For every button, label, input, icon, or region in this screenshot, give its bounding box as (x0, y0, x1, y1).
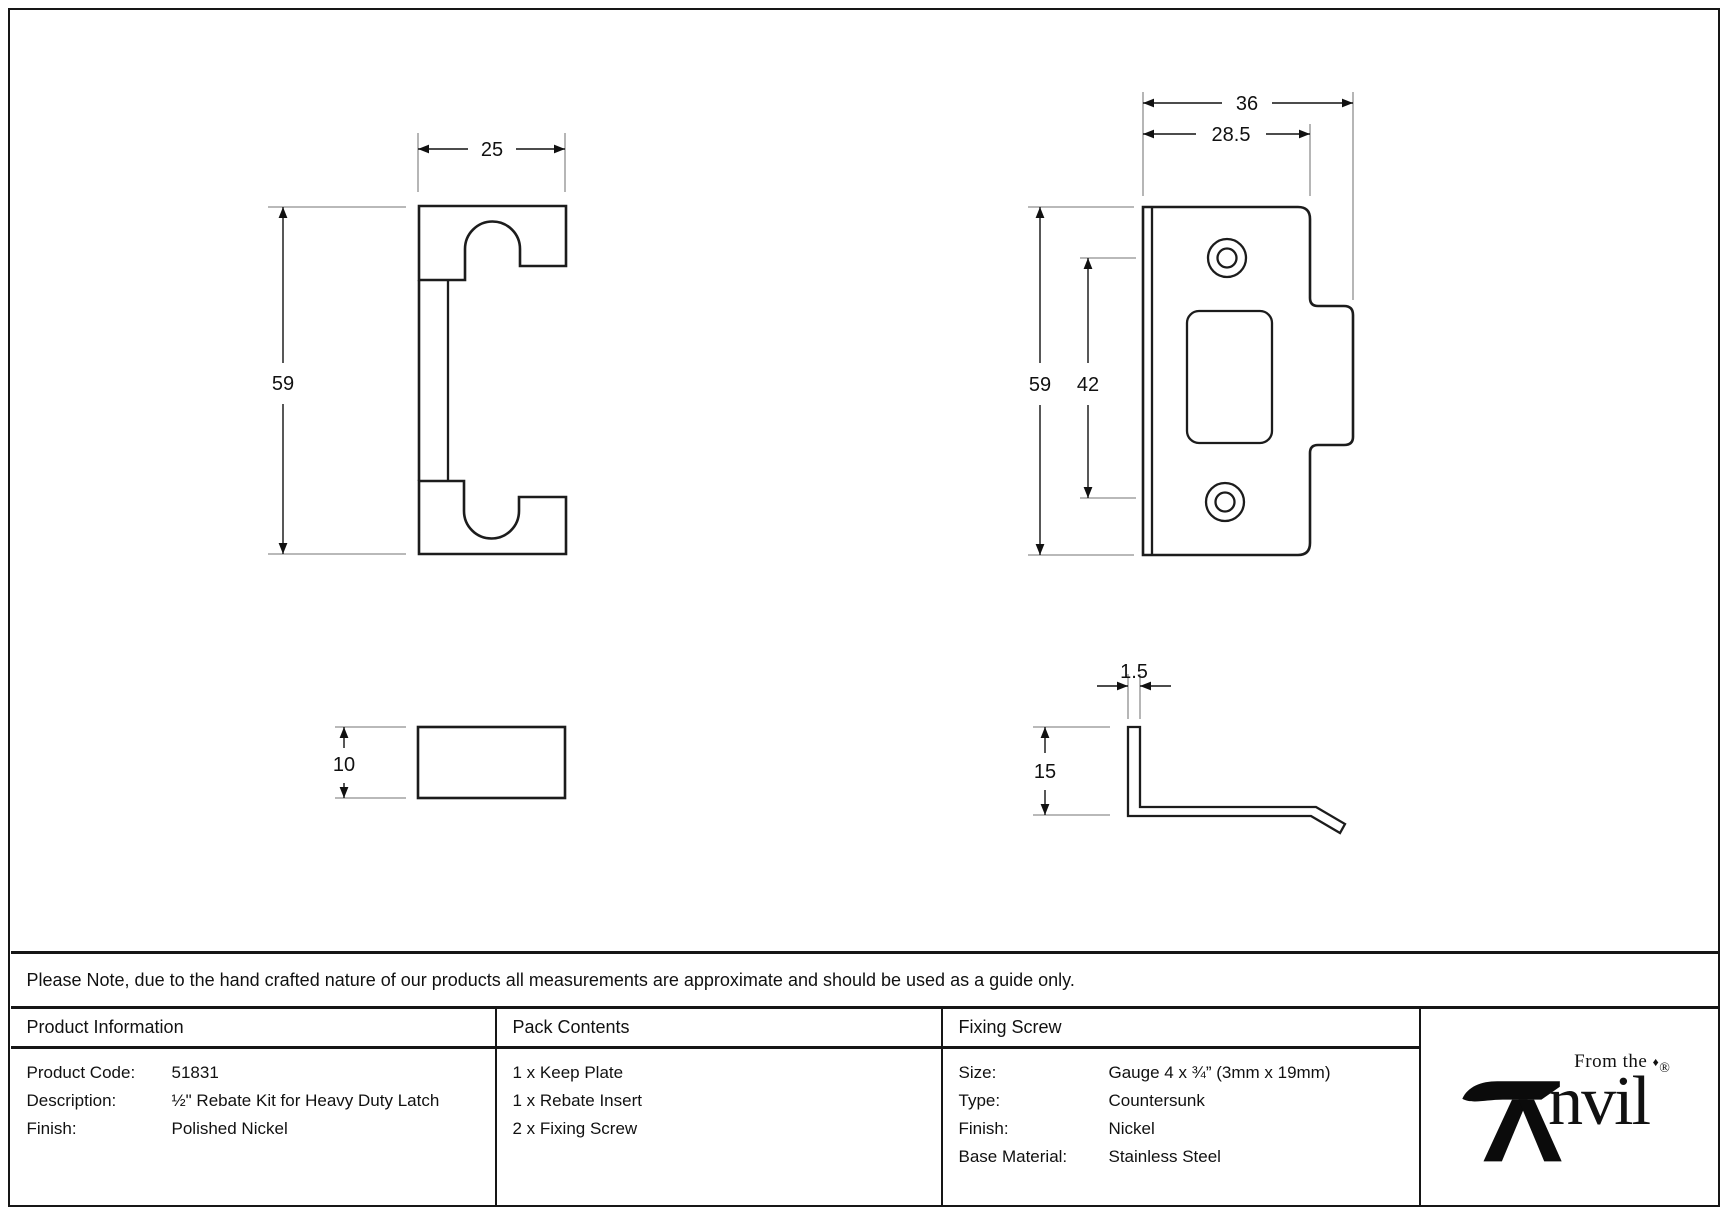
table-row: Finish: Nickel (959, 1115, 1419, 1143)
column-pack-contents: Pack Contents 1 x Keep Plate 1 x Rebate … (495, 1009, 941, 1207)
dim-keep-plate-width: 28.5 (1212, 124, 1251, 146)
row-label: Finish: (27, 1115, 172, 1143)
measurement-note: Please Note, due to the hand crafted nat… (11, 951, 1720, 1006)
column-fixing-screw: Fixing Screw Size: Gauge 4 x ¾” (3mm x 1… (941, 1009, 1419, 1207)
screw-hole-top-outer (1208, 239, 1246, 277)
note-text: Please Note, due to the hand crafted nat… (27, 970, 1075, 991)
dim-keep-thickness: 1.5 (1120, 661, 1148, 683)
product-information-header: Product Information (11, 1009, 495, 1049)
dim-keep-lip-height: 15 (1034, 761, 1056, 783)
fixing-screw-body: Size: Gauge 4 x ¾” (3mm x 19mm) Type: Co… (943, 1049, 1419, 1171)
brand-name: nvil (1548, 1073, 1659, 1130)
dim-insert-height: 59 (272, 373, 294, 395)
description-value: ½" Rebate Kit for Heavy Duty Latch (172, 1087, 440, 1115)
insert-side-outline (418, 727, 565, 798)
list-item: 1 x Keep Plate (513, 1059, 941, 1087)
rebate-insert-front-view: 25 59 (268, 133, 566, 554)
row-label: Size: (959, 1059, 1109, 1087)
registered-mark: ® (1659, 1061, 1670, 1077)
dim-insert-width: 25 (481, 139, 503, 161)
screw-size-value: Gauge 4 x ¾” (3mm x 19mm) (1109, 1059, 1331, 1087)
finish-value: Polished Nickel (172, 1115, 288, 1143)
screw-type-value: Countersunk (1109, 1087, 1205, 1115)
screw-hole-top-inner (1218, 249, 1237, 268)
table-row: Description: ½" Rebate Kit for Heavy Dut… (27, 1087, 495, 1115)
rebate-insert-side-view: 10 (333, 727, 565, 798)
screw-material-value: Stainless Steel (1109, 1143, 1221, 1171)
product-info-table: Product Information Product Code: 51831 … (11, 1006, 1720, 1207)
product-code-value: 51831 (172, 1059, 219, 1087)
keep-plate-outline (1143, 207, 1353, 555)
screw-hole-bottom-inner (1216, 493, 1235, 512)
table-row: Size: Gauge 4 x ¾” (3mm x 19mm) (959, 1059, 1419, 1087)
pack-contents-header: Pack Contents (497, 1009, 941, 1049)
fixing-screw-header: Fixing Screw (943, 1009, 1419, 1049)
insert-top-block-outline (419, 206, 566, 280)
latch-opening (1187, 311, 1272, 443)
spec-sheet: 25 59 10 (0, 0, 1730, 1217)
table-row: Type: Countersunk (959, 1087, 1419, 1115)
screw-finish-value: Nickel (1109, 1115, 1155, 1143)
column-product-information: Product Information Product Code: 51831 … (11, 1009, 495, 1207)
row-label: Base Material: (959, 1143, 1109, 1171)
row-label: Type: (959, 1087, 1109, 1115)
dim-keep-screw-spacing: 42 (1077, 374, 1099, 396)
from-the-anvil-logo: From the ♦ nvil ® (1460, 1051, 1680, 1165)
pack-contents-body: 1 x Keep Plate 1 x Rebate Insert 2 x Fix… (497, 1049, 941, 1143)
dim-insert-thickness: 10 (333, 754, 355, 776)
list-item: 1 x Rebate Insert (513, 1087, 941, 1115)
table-row: Product Code: 51831 (27, 1059, 495, 1087)
technical-drawing: 25 59 10 (0, 0, 1730, 953)
row-label: Finish: (959, 1115, 1109, 1143)
keep-plate-side-view: 1.5 15 (1033, 661, 1345, 833)
row-label: Product Code: (27, 1059, 172, 1087)
brand-cell: From the ♦ nvil ® (1419, 1009, 1720, 1207)
list-item: 2 x Fixing Screw (513, 1115, 941, 1143)
screw-hole-bottom-outer (1206, 483, 1244, 521)
keep-plate-front-view: 36 28.5 59 42 (1028, 92, 1353, 555)
table-row: Finish: Polished Nickel (27, 1115, 495, 1143)
logo-text: From the ♦ nvil (1548, 1051, 1659, 1130)
row-label: Description: (27, 1087, 172, 1115)
diamond-icon: ♦ (1653, 1055, 1660, 1069)
dim-keep-height: 59 (1029, 374, 1051, 396)
insert-bottom-block-outline (419, 481, 566, 554)
keep-side-outline (1128, 727, 1345, 833)
product-information-body: Product Code: 51831 Description: ½" Reba… (11, 1049, 495, 1143)
dim-keep-overall-width: 36 (1236, 93, 1258, 115)
table-row: Base Material: Stainless Steel (959, 1143, 1419, 1171)
